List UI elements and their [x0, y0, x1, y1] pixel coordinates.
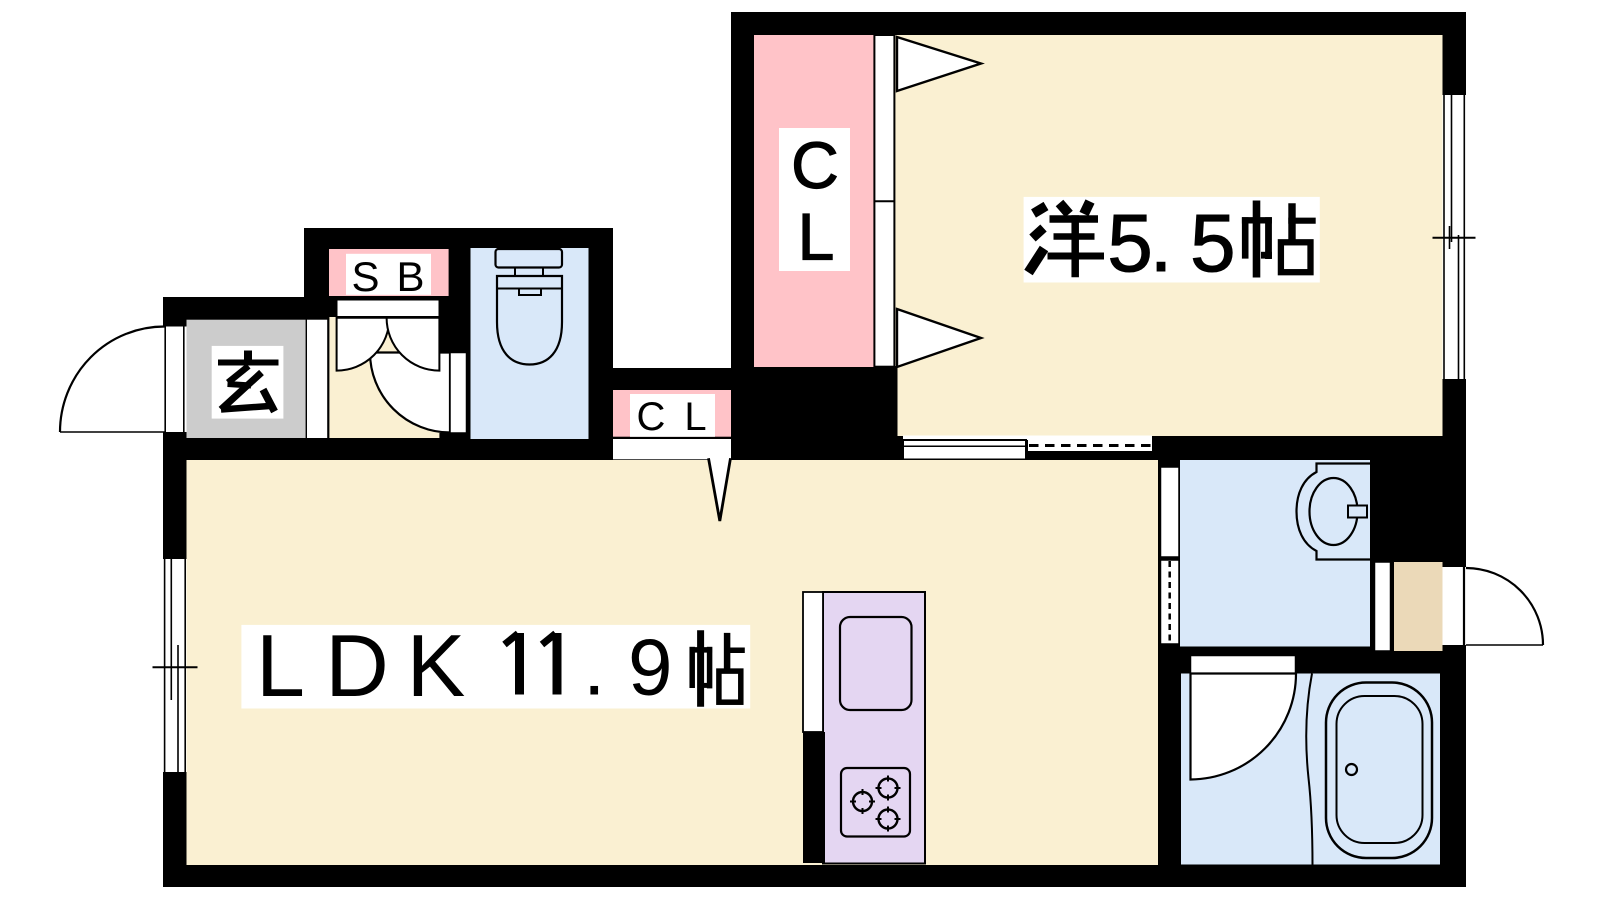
- svg-text:S: S: [351, 253, 379, 300]
- svg-text:9: 9: [628, 623, 673, 712]
- svg-text:C: C: [791, 128, 839, 202]
- svg-text:B: B: [396, 253, 424, 300]
- svg-text:L: L: [684, 395, 706, 439]
- svg-text:L: L: [256, 616, 305, 715]
- svg-text:.: .: [1150, 198, 1173, 289]
- svg-text:5: 5: [1190, 198, 1236, 289]
- svg-text:C: C: [637, 395, 666, 439]
- svg-text:L: L: [798, 200, 835, 274]
- svg-text:D: D: [325, 616, 389, 715]
- svg-text:5: 5: [1107, 198, 1153, 289]
- svg-text:K: K: [407, 616, 466, 715]
- svg-text:.: .: [583, 623, 605, 712]
